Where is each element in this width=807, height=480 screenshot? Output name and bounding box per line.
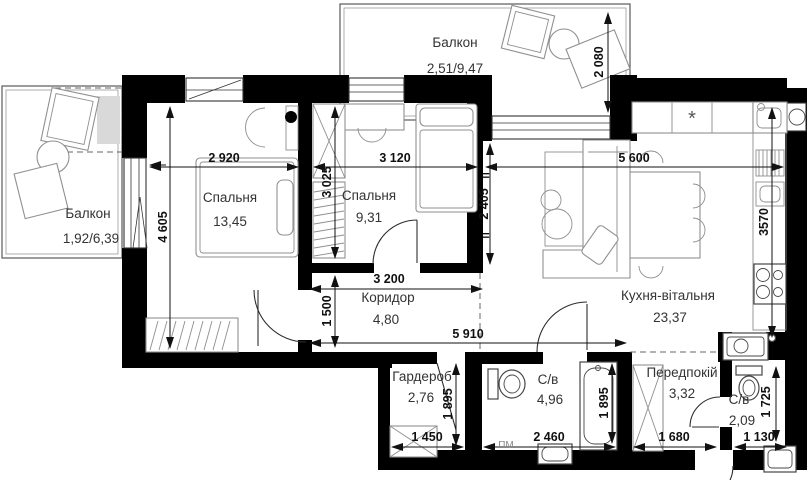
coffee-table: [542, 209, 572, 239]
room-bedroom1-area: 13,45: [213, 214, 247, 229]
dim-kitchen-left-height: 2 405: [477, 188, 491, 219]
washing-machine-label: ПМ: [498, 440, 514, 451]
chair: [639, 266, 663, 278]
entrance-door: [699, 466, 733, 480]
floor-plan-svg: 2 920 3 120 5 600 4 605 3 025 2 405 = = …: [0, 0, 807, 480]
bedroom2-furniture: [313, 104, 477, 258]
hob-symbol: *: [688, 108, 696, 130]
dim-bedroom1-height: 4 605: [156, 211, 170, 242]
floor-plan: 2 920 3 120 5 600 4 605 3 025 2 405 = = …: [0, 0, 807, 480]
room-kitchen-area: 23,37: [653, 310, 687, 325]
room-bathroom-main-area: 4,96: [537, 392, 563, 407]
side-table: [541, 190, 561, 210]
chair: [246, 108, 266, 147]
wardrobe-hatch: [146, 318, 238, 352]
dim-bedroom2-height: 3 025: [320, 166, 334, 197]
room-corridor-area: 4,80: [373, 312, 399, 327]
desk: [340, 104, 404, 130]
approx-mark-top: =: [482, 169, 489, 183]
room-bedroom1-name: Спальня: [203, 190, 257, 205]
kitchen-balcony-window: [492, 116, 610, 139]
dim-wardrobe-height: 1 895: [441, 388, 455, 419]
room-balcony-left-area: 1,92/6,39: [63, 231, 119, 246]
vent-hatch: [756, 150, 784, 176]
dim-wardrobe-width: 1 450: [411, 430, 442, 444]
dim-corridor-width: 3 200: [373, 272, 404, 286]
room-hallway-name: Передпокій: [646, 365, 717, 380]
room-bedroom2-name: Спальня: [342, 188, 396, 203]
dim-balcony-depth: 2 080: [592, 46, 606, 77]
dining-table: [623, 151, 705, 278]
bedroom2-window: [349, 78, 404, 101]
room-bathroom-main-name: С/в: [538, 372, 559, 387]
bathroom-main-door: [537, 302, 587, 352]
bedroom1-door: [254, 290, 306, 342]
room-balcony-top-name: Балкон: [432, 35, 477, 50]
dim-bathroom-main-width: 2 460: [533, 430, 564, 444]
washbasin: [764, 446, 796, 472]
boiler-niche: [787, 103, 806, 131]
toilet: [488, 369, 525, 399]
dim-bathroom-main-height: 1 895: [597, 387, 611, 418]
pillow: [277, 180, 293, 235]
dim-kitchen-counter-height: 3570: [757, 208, 771, 236]
dim-bathroom-small-width: 1 130: [743, 430, 774, 444]
dim-kitchen-width: 5 600: [618, 151, 649, 165]
stove: [754, 264, 786, 304]
column-dot: [285, 111, 297, 123]
bedroom2-door: [373, 220, 417, 264]
pillow: [420, 108, 473, 126]
room-wardrobe-area: 2,76: [408, 390, 434, 405]
washing-machine: [723, 333, 776, 360]
room-bathroom-small-area: 2,09: [729, 413, 755, 428]
balcony-left-furniture: [14, 88, 99, 219]
dim-bedroom1-width: 2 920: [208, 151, 239, 165]
bathroom-small-door: [690, 397, 720, 427]
room-balcony-left-name: Балкон: [65, 206, 110, 221]
rug: [545, 152, 583, 246]
room-kitchen-name: Кухня-вітальня: [621, 288, 715, 303]
dim-bathroom-small-height: 1 725: [759, 386, 773, 417]
dim-corridor-height: 1 500: [320, 295, 334, 326]
room-balcony-top-area: 2,51/9,47: [427, 61, 483, 76]
room-hallway-area: 3,32: [669, 386, 695, 401]
approx-mark-bottom: =: [482, 229, 489, 243]
dim-hallway-width: 1 680: [658, 430, 689, 444]
room-wardrobe-name: Гардероб: [392, 369, 452, 384]
room-bathroom-small-name: С/в: [729, 392, 750, 407]
bedroom1-window: [186, 78, 243, 101]
room-bedroom2-area: 9,31: [356, 210, 382, 225]
balcony-shaft-hatch: [97, 96, 120, 144]
dim-corridor-total-width: 5 910: [452, 327, 483, 341]
room-corridor-name: Коридор: [361, 290, 414, 305]
dim-bedroom2-width: 3 120: [379, 151, 410, 165]
